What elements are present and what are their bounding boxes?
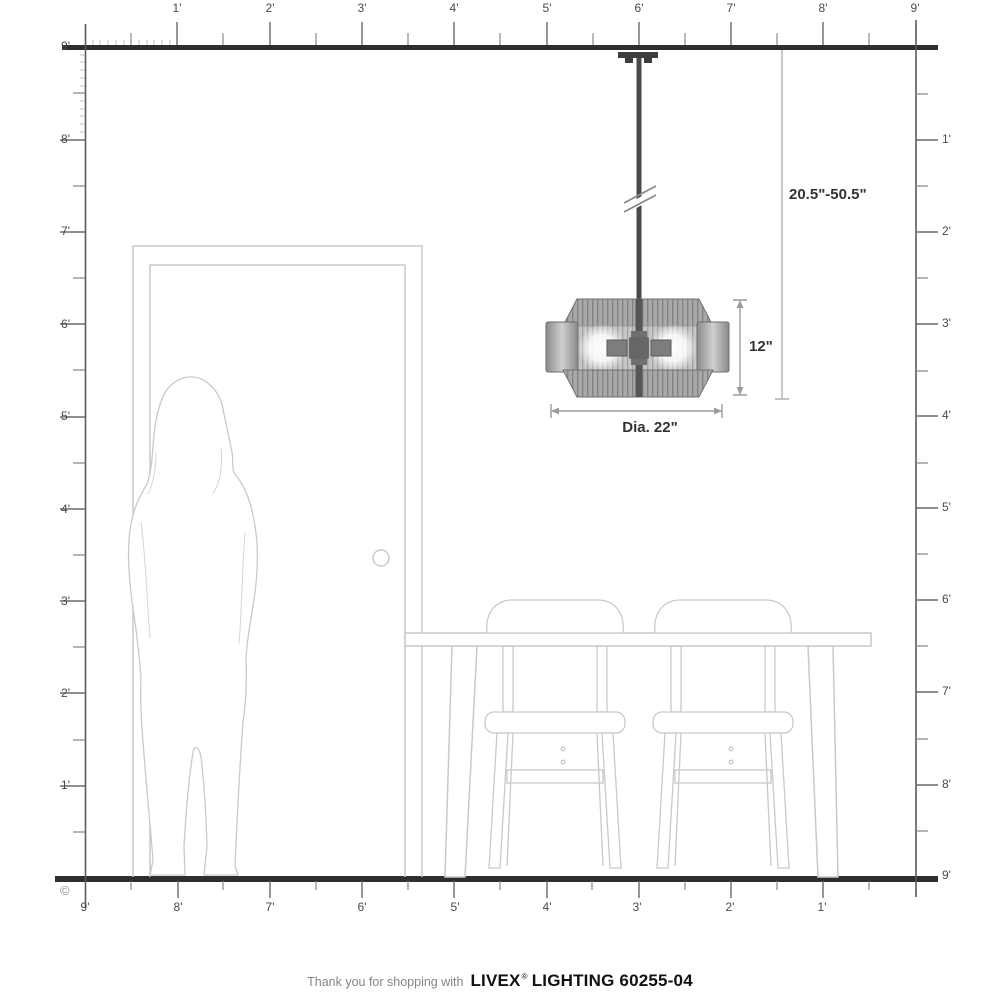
- diameter-dimension-label: Dia. 22": [622, 420, 677, 435]
- bottom-ruler-label: 3': [633, 901, 642, 913]
- pendant-light: [546, 52, 729, 397]
- chair-backrest: [487, 600, 624, 633]
- left-ruler-label: 2': [34, 687, 70, 699]
- fixture-hub: [629, 337, 649, 359]
- chair-seat: [485, 712, 625, 733]
- left-ruler-label: 8': [34, 133, 70, 145]
- diagram-artwork: [0, 0, 1000, 1000]
- arrow-left: [551, 408, 559, 415]
- canopy-nub: [625, 58, 633, 63]
- top-ruler-label: 5': [543, 2, 552, 14]
- bottom-ruler-label: 4': [543, 901, 552, 913]
- top-ruler-label: 1': [173, 2, 182, 14]
- bottom-ruler-label: 5': [451, 901, 460, 913]
- footer-caption: Thank you for shopping with LIVEX®LIGHTI…: [0, 971, 1000, 991]
- bottom-ruler-label: 7': [266, 901, 275, 913]
- fixture-left-cap: [546, 322, 578, 372]
- person-silhouette: [129, 377, 258, 875]
- brand-livex: LIVEX: [470, 971, 520, 990]
- chair-front-leg-right: [602, 733, 621, 868]
- footer-prefix-text: Thank you for shopping with: [307, 975, 463, 989]
- left-ruler-label: 9': [34, 40, 70, 52]
- fixture-height-dimension-label: 12": [749, 339, 773, 354]
- registered-trademark-symbol: ®: [522, 972, 528, 981]
- top-ruler-label: 2': [266, 2, 275, 14]
- hang-height-dimension-label: 20.5"-50.5": [789, 187, 867, 202]
- dining-table: [405, 633, 871, 877]
- chair-stretcher: [507, 770, 603, 783]
- left-ruler-label: 5': [34, 410, 70, 422]
- right-ruler-label: 5': [942, 501, 951, 513]
- left-ruler-half-ticks: [73, 93, 85, 832]
- table-leg-right: [808, 646, 838, 877]
- fixture-right-cap: [697, 322, 729, 372]
- bottom-ruler-label: 6': [358, 901, 367, 913]
- diameter-dimension-line: [551, 404, 722, 418]
- fixture-hub-ring-bottom: [631, 359, 647, 365]
- top-ruler-label: 8': [819, 2, 828, 14]
- left-ruler-label: 6': [34, 318, 70, 330]
- table-leg-left: [445, 646, 477, 877]
- chair-joinery-dot: [561, 747, 565, 751]
- arrow-right: [714, 408, 722, 415]
- top-ruler-label: 7': [727, 2, 736, 14]
- fixture-socket-left: [607, 340, 627, 356]
- bottom-ruler-label: 9': [81, 901, 90, 913]
- arrow-down: [737, 387, 744, 395]
- chair-rear-legs: [507, 733, 603, 866]
- left-ruler-label: 7': [34, 225, 70, 237]
- bottom-ruler-label: 2': [726, 901, 735, 913]
- top-ruler-label: 9': [911, 2, 920, 14]
- fixture-height-dimension-line: [733, 300, 747, 395]
- chair-back-post-right: [597, 646, 607, 712]
- top-ruler-label: 6': [635, 2, 644, 14]
- hang-height-dimension-line: [775, 50, 789, 399]
- table-top: [405, 633, 871, 646]
- top-ruler-half-ticks: [131, 33, 869, 45]
- door-knob: [373, 550, 389, 566]
- chair-back-post-left: [503, 646, 513, 712]
- copyright-symbol: ©: [60, 884, 70, 897]
- pendant-stem: [637, 52, 642, 299]
- right-ruler-label: 7': [942, 685, 951, 697]
- arrow-up: [737, 300, 744, 308]
- right-ruler-label: 8': [942, 778, 951, 790]
- right-ruler-label: 9': [942, 869, 951, 881]
- bottom-ruler-half-ticks: [131, 881, 869, 890]
- bottom-ruler-label: 8': [174, 901, 183, 913]
- chair-joinery-dot: [561, 760, 565, 764]
- top-ruler-label: 4': [450, 2, 459, 14]
- chair-front-leg-left: [489, 733, 508, 868]
- right-ruler-label: 2': [942, 225, 951, 237]
- product-number: LIGHTING 60255-04: [532, 971, 693, 990]
- bottom-ruler-label: 1': [818, 901, 827, 913]
- room-scale-diagram: 1' 2' 3' 4' 5' 6' 7' 8' 9' 9' 8' 7' 6' 5…: [0, 0, 1000, 1000]
- top-ruler-label: 3': [358, 2, 367, 14]
- person-outline: [129, 377, 258, 875]
- left-ruler-label: 1': [34, 779, 70, 791]
- left-ruler-label: 4': [34, 503, 70, 515]
- right-ruler-half-ticks: [916, 94, 928, 831]
- ceiling-canopy: [618, 52, 658, 58]
- canopy-nub: [644, 58, 652, 63]
- right-ruler-label: 1': [942, 133, 951, 145]
- fixture-hub-ring-top: [631, 331, 647, 337]
- left-ruler-label: 3': [34, 595, 70, 607]
- fixture-socket-right: [651, 340, 671, 356]
- right-ruler-label: 3': [942, 317, 951, 329]
- right-ruler-label: 6': [942, 593, 951, 605]
- brand-name: LIVEX®LIGHTING 60255-04: [470, 971, 692, 991]
- right-ruler-label: 4': [942, 409, 951, 421]
